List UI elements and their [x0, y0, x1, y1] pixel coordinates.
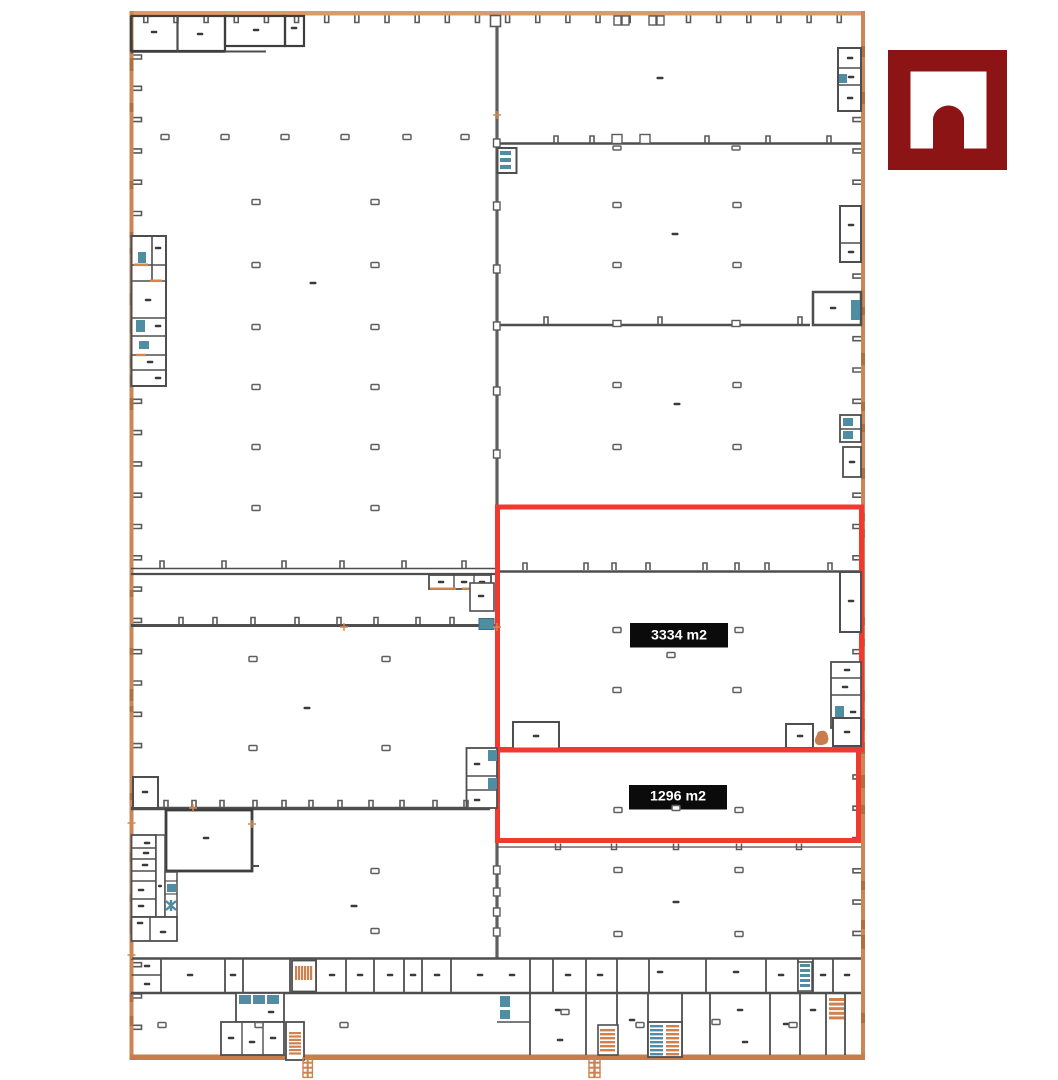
svg-text:1296 m2: 1296 m2: [650, 789, 706, 805]
svg-text:3334 m2: 3334 m2: [651, 628, 707, 644]
